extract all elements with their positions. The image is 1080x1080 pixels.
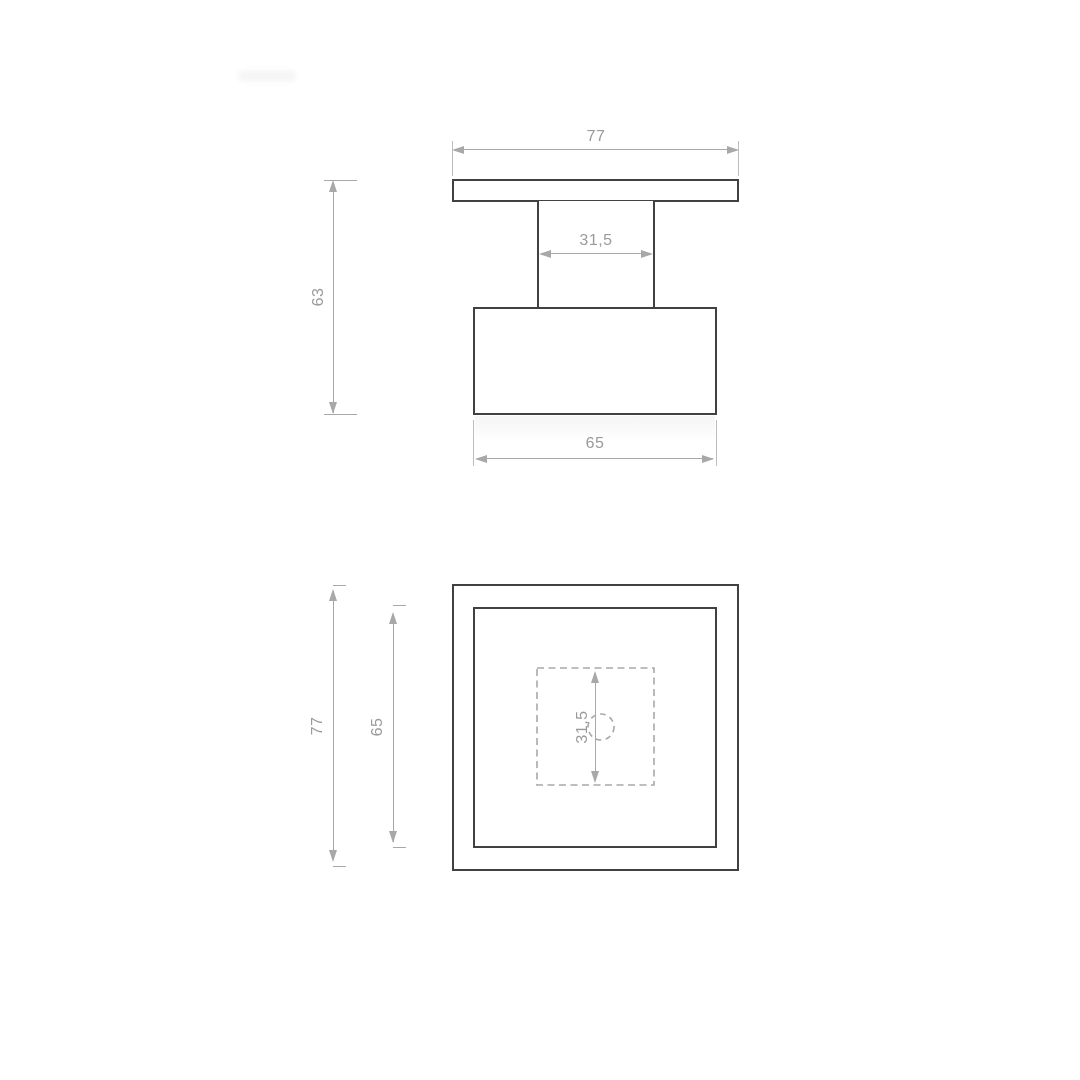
arrowhead-up-icon (591, 671, 599, 683)
extension-line (473, 420, 474, 466)
extension-tick (393, 847, 406, 848)
stem-outline (537, 201, 655, 308)
dimension-line (393, 614, 394, 842)
body-outline (473, 307, 717, 415)
mounting-plate-outline (452, 179, 739, 202)
arrowhead-right-icon (727, 146, 739, 154)
extension-tick (393, 605, 406, 606)
dimension-line (454, 149, 737, 150)
technical-drawing-sheet: 77 63 31,5 (0, 0, 1080, 1080)
dimension-label: 63 (310, 288, 328, 307)
dimension-line (333, 182, 334, 413)
extension-line (716, 420, 717, 466)
arrowhead-down-icon (329, 850, 337, 862)
dimension-line (477, 458, 713, 459)
arrowhead-left-icon (452, 146, 464, 154)
arrowhead-down-icon (329, 402, 337, 414)
arrowhead-left-icon (539, 250, 551, 258)
extension-tick (324, 414, 357, 415)
scan-smudge (238, 70, 296, 82)
dimension-label: 77 (309, 717, 327, 736)
arrowhead-right-icon (702, 455, 714, 463)
arrowhead-up-icon (329, 180, 337, 192)
arrowhead-up-icon (329, 589, 337, 601)
dimension-label: 31,5 (574, 710, 592, 743)
dimension-line (595, 673, 596, 781)
arrowhead-up-icon (389, 612, 397, 624)
arrowhead-down-icon (389, 831, 397, 843)
arrowhead-right-icon (641, 250, 653, 258)
dimension-line (333, 591, 334, 860)
dimension-label: 77 (587, 128, 606, 146)
dimension-line (541, 253, 651, 254)
dimension-label: 31,5 (579, 232, 612, 250)
dimension-label: 65 (369, 718, 387, 737)
extension-tick (333, 585, 346, 586)
arrowhead-left-icon (475, 455, 487, 463)
dimension-label: 65 (586, 435, 605, 453)
extension-tick (333, 866, 346, 867)
arrowhead-down-icon (591, 771, 599, 783)
